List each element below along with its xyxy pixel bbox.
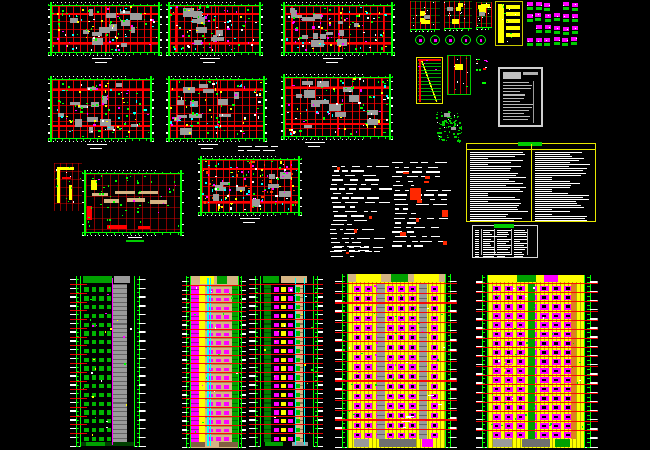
speckle (62, 13, 63, 15)
floor-level-lines (182, 285, 246, 442)
notes-text-line (535, 189, 553, 190)
speckle (287, 112, 288, 113)
hatch-blob (296, 94, 302, 99)
window-cell (99, 410, 104, 414)
speckle (252, 181, 254, 183)
speckle (369, 13, 370, 14)
speckle (385, 46, 387, 47)
speckle (140, 13, 141, 14)
dimension-ticks (198, 212, 302, 216)
speckle (195, 48, 196, 50)
speckle (258, 116, 259, 118)
plan-body (52, 6, 158, 52)
speckle (109, 226, 110, 228)
speckle (260, 90, 262, 91)
speckle (341, 17, 343, 19)
table-cell-text (483, 254, 497, 255)
speckle (300, 113, 301, 115)
roof-plan[interactable] (82, 170, 184, 246)
speckle (254, 114, 256, 116)
speckle (460, 140, 461, 141)
speckle (449, 131, 450, 133)
speckle (216, 117, 217, 119)
speckle (282, 176, 284, 178)
notes-text-line (535, 201, 576, 202)
speckle (378, 81, 380, 83)
speckle (350, 34, 351, 35)
speckle (326, 90, 328, 92)
speckle (122, 215, 123, 217)
table-cell-text (483, 236, 497, 237)
speckle (201, 42, 203, 44)
notes-text-line (535, 183, 581, 184)
speckle (127, 102, 129, 103)
speckle (309, 42, 311, 44)
speckle (292, 185, 293, 187)
speckle (319, 97, 320, 99)
speckle (213, 184, 215, 186)
speckle (340, 12, 342, 14)
speckle (105, 331, 106, 333)
spec-text (345, 202, 358, 203)
elevation-2[interactable] (182, 276, 246, 448)
speckle (105, 90, 106, 92)
speckle (424, 63, 425, 64)
speckle (96, 85, 97, 87)
speckle (209, 109, 211, 111)
speckle (75, 105, 77, 107)
speckle (230, 172, 231, 173)
spec-text (412, 241, 418, 242)
spec-text (407, 231, 414, 232)
spec-text (345, 242, 349, 243)
window-cell (107, 323, 112, 327)
speckle (297, 47, 299, 49)
speckle (236, 167, 238, 168)
connector-details[interactable] (526, 1, 580, 49)
speckle (538, 41, 539, 42)
speckle (329, 24, 331, 26)
speckle (170, 121, 171, 123)
speckle (373, 96, 375, 98)
drawing-title-text (203, 62, 215, 63)
wall-line (217, 80, 219, 138)
speckle (258, 101, 260, 103)
unit-detail[interactable] (54, 163, 82, 211)
speckle (69, 42, 70, 43)
circle-core (465, 39, 468, 42)
speckle (286, 198, 288, 199)
detail-circle (415, 35, 425, 45)
drawing-title-text (200, 58, 220, 59)
spec-text (395, 222, 400, 223)
speckle (383, 132, 385, 133)
spec-text (363, 175, 376, 176)
speckle (227, 10, 229, 12)
spec-text (395, 208, 399, 209)
hatch-blob (338, 21, 343, 24)
section-detail-1[interactable] (410, 1, 440, 32)
spec-text (394, 194, 407, 195)
speckle (205, 182, 206, 184)
parapet-block (544, 275, 558, 282)
speckle (254, 92, 256, 94)
speckle (110, 328, 112, 330)
hatch-blob (213, 194, 219, 201)
dimension-ticks (259, 2, 263, 56)
wall-detail[interactable] (447, 55, 471, 95)
speckle (228, 183, 229, 185)
speckle (248, 18, 249, 19)
speckle (92, 105, 94, 106)
notes-text-line (535, 162, 570, 163)
speckle (212, 180, 213, 182)
hatch-blob (367, 119, 377, 125)
speckle (240, 85, 242, 87)
mini-detail (572, 14, 579, 23)
speckle (288, 16, 290, 17)
speckle (448, 127, 449, 128)
schedule-table[interactable] (472, 225, 538, 258)
floor-level-lines (335, 283, 457, 439)
spec-text (331, 238, 337, 239)
notes-table[interactable] (466, 143, 596, 222)
notes-text-line (535, 173, 586, 174)
speckle (446, 140, 447, 141)
window-cell (99, 419, 104, 423)
dimension-ticks (82, 232, 184, 236)
table-cell-text (475, 241, 479, 242)
wall-line (150, 6, 152, 52)
speckle (379, 111, 380, 113)
speckle (291, 182, 292, 183)
speckle (283, 173, 285, 174)
mini-detail (545, 25, 552, 34)
speckle (373, 18, 375, 19)
speckle (238, 171, 239, 172)
speckle (77, 21, 78, 22)
speckle (248, 190, 249, 192)
speckle (355, 48, 357, 50)
spec-text (374, 238, 386, 239)
speckle (102, 103, 104, 105)
dimension-ticks (198, 156, 202, 216)
speckle (58, 23, 60, 25)
speckle (95, 417, 96, 418)
parapet-block (391, 274, 408, 282)
spec-text (367, 197, 379, 198)
speckle (189, 30, 191, 31)
core-plan-detail[interactable] (436, 111, 463, 143)
speckle (191, 125, 192, 127)
dimension-ticks (48, 76, 154, 80)
spec-text (416, 167, 422, 168)
notes-text-line (535, 195, 589, 196)
dimension-ticks (263, 76, 267, 142)
floor-plan-1[interactable] (48, 2, 162, 66)
speckle (464, 4, 465, 5)
spec-text (433, 204, 447, 205)
speckle (152, 26, 153, 27)
speckle (110, 196, 111, 197)
speckle (336, 103, 338, 105)
spec-text (330, 233, 337, 234)
speckle (375, 34, 376, 36)
stair-core-detail[interactable] (495, 1, 523, 46)
drawing-title-text (305, 142, 325, 143)
speckle (461, 12, 462, 13)
speckle (360, 89, 362, 91)
speckle (224, 130, 225, 131)
speckle (212, 49, 213, 51)
spec-text (346, 193, 353, 194)
plan-body (170, 6, 259, 52)
floor-plan-5[interactable] (166, 76, 267, 152)
spec-text (393, 185, 403, 186)
speckle (123, 10, 125, 12)
speckle (203, 47, 205, 49)
notes-text-line (470, 183, 523, 184)
speckle (459, 128, 461, 129)
speckle (349, 26, 350, 27)
plan-body (285, 78, 389, 136)
speckle (264, 190, 265, 191)
notes-text-line (470, 209, 518, 210)
spec-text (392, 176, 401, 177)
speckle (242, 131, 244, 133)
spec-text (351, 197, 364, 198)
wall-line (101, 80, 103, 138)
speckle (345, 88, 347, 89)
speckle (211, 33, 212, 34)
base-block (493, 439, 512, 447)
speckle (100, 204, 102, 206)
speckle (293, 190, 295, 191)
speckle (277, 178, 279, 180)
core-wall (498, 4, 504, 43)
speckle (563, 5, 564, 6)
notes-text-line (470, 181, 515, 182)
parapet-block (356, 274, 381, 282)
hatch-blob (313, 33, 317, 39)
speckle (230, 207, 232, 209)
spec-text (420, 241, 432, 242)
window-cell (92, 314, 97, 318)
speckle (511, 37, 512, 38)
speckle (557, 28, 558, 29)
table-cell-text (514, 230, 525, 231)
speckle (486, 61, 488, 62)
speckle (369, 118, 370, 119)
spec-text (365, 179, 379, 180)
axis-mark (410, 188, 421, 200)
speckle (248, 188, 250, 189)
elevation-5[interactable] (476, 275, 598, 448)
speckle (96, 104, 98, 106)
notes-text-line (535, 166, 569, 167)
speckle (458, 137, 459, 138)
spec-text (376, 166, 390, 167)
speckle (204, 201, 206, 203)
table-grid-line (511, 229, 512, 255)
section-detail-3[interactable] (476, 2, 492, 30)
speckle (344, 128, 345, 130)
dimension-ticks (82, 170, 184, 174)
speckle (246, 174, 247, 176)
speckle (318, 112, 319, 114)
floor-plan-7[interactable] (198, 156, 302, 226)
table-header-cell (523, 72, 539, 75)
speckle (248, 171, 250, 173)
speckle (363, 125, 364, 127)
table-cell-text (514, 239, 527, 240)
speckle (109, 219, 111, 220)
floor-plan-3[interactable] (281, 2, 395, 66)
table-cell-text (483, 232, 490, 233)
speckle (109, 41, 111, 43)
speckle (91, 28, 92, 30)
speckle (188, 10, 190, 11)
notes-text-line (535, 164, 590, 165)
speckle (56, 186, 57, 187)
speckle (112, 39, 114, 41)
window-cell (92, 384, 97, 388)
speckle (93, 40, 94, 41)
elevation-4[interactable] (335, 274, 457, 448)
speckle (75, 110, 77, 111)
speckle (124, 123, 126, 125)
hatch-blob (304, 125, 312, 128)
hatch-blob (479, 12, 485, 16)
notes-text-line (470, 207, 517, 208)
circle-details[interactable] (413, 33, 489, 48)
misc-marks[interactable] (472, 58, 492, 94)
table-cell-text (475, 243, 479, 244)
elevation-3[interactable] (249, 276, 323, 447)
speckle (478, 18, 479, 19)
speckle (108, 109, 110, 111)
window-cell (92, 375, 97, 379)
speckle (126, 115, 127, 117)
speckle (140, 221, 141, 223)
speckle (282, 203, 283, 205)
title-block-table[interactable] (498, 67, 543, 127)
detail-body (448, 56, 470, 94)
drawing-canvas[interactable] (0, 0, 650, 450)
speckle (135, 119, 137, 121)
speckle (235, 94, 236, 96)
speckle (93, 37, 95, 39)
hatch-blob (130, 13, 142, 20)
speckle (344, 48, 346, 49)
dimension-ticks (166, 76, 267, 80)
spec-text (357, 238, 371, 239)
floor-plan-6[interactable] (281, 74, 393, 150)
table-cell-text (475, 252, 479, 253)
spec-text (342, 238, 349, 239)
speckle (163, 203, 164, 204)
speckle (455, 89, 456, 90)
table-cell-text (514, 249, 526, 250)
speckle (130, 176, 131, 177)
speckle (231, 172, 233, 173)
speckle (208, 174, 209, 175)
table-cell-text (483, 249, 495, 250)
speckle (444, 139, 445, 141)
speckle (379, 12, 380, 13)
floor-plan-4[interactable] (48, 76, 154, 152)
mini-detail (527, 2, 534, 11)
speckle (502, 4, 503, 5)
speckle (453, 133, 455, 135)
note-line-2[interactable] (334, 246, 388, 257)
speckle (212, 197, 213, 199)
speckle (115, 49, 117, 51)
spec-text-2[interactable] (392, 162, 458, 250)
speckle (209, 183, 211, 185)
window-cell (107, 287, 112, 291)
speckle (181, 97, 182, 99)
spec-text (365, 202, 375, 203)
speckle (358, 25, 360, 27)
notes-text-line (470, 191, 523, 192)
speckle (299, 130, 301, 132)
floor-plan-2[interactable] (166, 2, 263, 66)
drawing-title-text (240, 218, 260, 219)
speckle (206, 6, 208, 8)
speckle (424, 7, 425, 8)
spec-text (414, 245, 423, 246)
speckle (215, 169, 217, 170)
speckle (435, 69, 436, 70)
mini-detail (563, 2, 570, 11)
wall-line (215, 6, 217, 52)
speckle (447, 135, 449, 136)
drawing-title-text (201, 148, 213, 149)
elevation-1[interactable] (70, 276, 146, 447)
notes-text-line (470, 187, 526, 188)
speckle (69, 167, 70, 168)
section-detail-2[interactable] (444, 1, 472, 31)
spec-text (411, 213, 416, 214)
speckle (81, 19, 82, 21)
speckle (532, 15, 533, 16)
hatch-blob (199, 84, 207, 87)
stair-section-detail[interactable] (416, 57, 443, 104)
spec-text (431, 236, 440, 237)
speckle (267, 175, 268, 177)
speckle (247, 9, 248, 11)
speckle (436, 114, 438, 115)
speckle (280, 161, 281, 163)
speckle (439, 136, 440, 137)
speckle (90, 299, 92, 300)
speckle (363, 110, 364, 112)
elevation-body (81, 276, 134, 447)
table-cell-text (514, 234, 527, 235)
spec-text (441, 199, 447, 200)
speckle (457, 125, 458, 126)
note-line-1[interactable] (238, 146, 274, 154)
spec-text (405, 190, 408, 191)
note-text (247, 150, 259, 151)
spec-text (422, 236, 426, 237)
spec-text (361, 184, 367, 185)
speckle (147, 114, 149, 115)
speckle (296, 12, 298, 13)
speckle (559, 40, 560, 41)
notes-text-line (470, 211, 528, 212)
